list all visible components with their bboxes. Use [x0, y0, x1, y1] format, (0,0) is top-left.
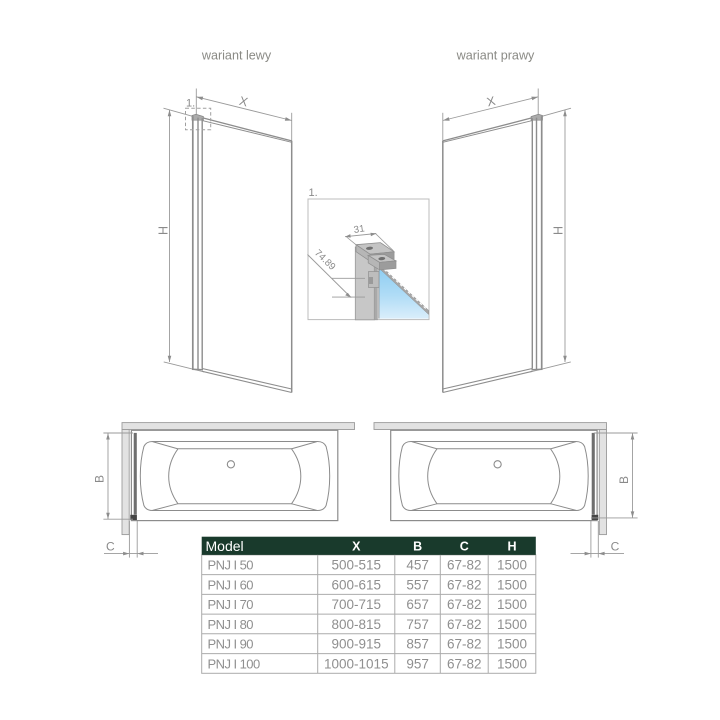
svg-text:67-82: 67-82 — [447, 637, 482, 652]
svg-text:500-515: 500-515 — [332, 558, 382, 573]
svg-text:1500: 1500 — [497, 617, 527, 632]
svg-text:B: B — [617, 476, 631, 484]
svg-text:1500: 1500 — [497, 577, 527, 592]
svg-text:657: 657 — [406, 597, 429, 612]
svg-text:C: C — [460, 539, 469, 553]
svg-text:800-815: 800-815 — [332, 617, 382, 632]
svg-text:PNJ I 60: PNJ I 60 — [208, 577, 254, 592]
svg-text:X: X — [238, 94, 250, 110]
svg-text:67-82: 67-82 — [447, 656, 482, 671]
svg-text:PNJ I 100: PNJ I 100 — [208, 656, 260, 671]
svg-text:1500: 1500 — [497, 637, 527, 652]
svg-text:31: 31 — [353, 224, 365, 236]
svg-text:67-82: 67-82 — [447, 558, 482, 573]
svg-text:457: 457 — [406, 558, 429, 573]
svg-text:PNJ I 70: PNJ I 70 — [208, 597, 254, 612]
svg-text:C: C — [611, 540, 620, 554]
svg-text:PNJ I 80: PNJ I 80 — [208, 617, 254, 632]
svg-text:X: X — [485, 94, 497, 110]
svg-text:PNJ I 90: PNJ I 90 — [208, 637, 254, 652]
svg-text:1500: 1500 — [497, 558, 527, 573]
svg-text:H: H — [507, 539, 516, 553]
svg-text:557: 557 — [406, 577, 429, 592]
svg-text:H: H — [551, 226, 565, 235]
svg-text:B: B — [413, 539, 422, 553]
svg-text:1500: 1500 — [497, 656, 527, 671]
svg-text:H: H — [156, 226, 170, 235]
svg-text:1000-1015: 1000-1015 — [324, 656, 389, 671]
svg-text:PNJ I 50: PNJ I 50 — [208, 558, 254, 573]
svg-text:67-82: 67-82 — [447, 577, 482, 592]
svg-text:900-915: 900-915 — [332, 637, 382, 652]
svg-text:Model: Model — [206, 538, 244, 554]
svg-text:700-715: 700-715 — [332, 597, 382, 612]
svg-text:1.: 1. — [309, 187, 318, 199]
svg-text:wariant lewy: wariant lewy — [201, 49, 272, 63]
svg-text:X: X — [352, 539, 361, 553]
svg-text:757: 757 — [406, 617, 429, 632]
svg-text:1500: 1500 — [497, 597, 527, 612]
svg-text:67-82: 67-82 — [447, 597, 482, 612]
svg-text:1.: 1. — [186, 98, 195, 110]
svg-text:C: C — [106, 540, 115, 554]
svg-text:B: B — [93, 475, 107, 483]
svg-text:67-82: 67-82 — [447, 617, 482, 632]
svg-text:857: 857 — [406, 637, 429, 652]
svg-text:957: 957 — [406, 656, 429, 671]
svg-text:wariant prawy: wariant prawy — [456, 49, 535, 63]
svg-text:600-615: 600-615 — [332, 577, 382, 592]
